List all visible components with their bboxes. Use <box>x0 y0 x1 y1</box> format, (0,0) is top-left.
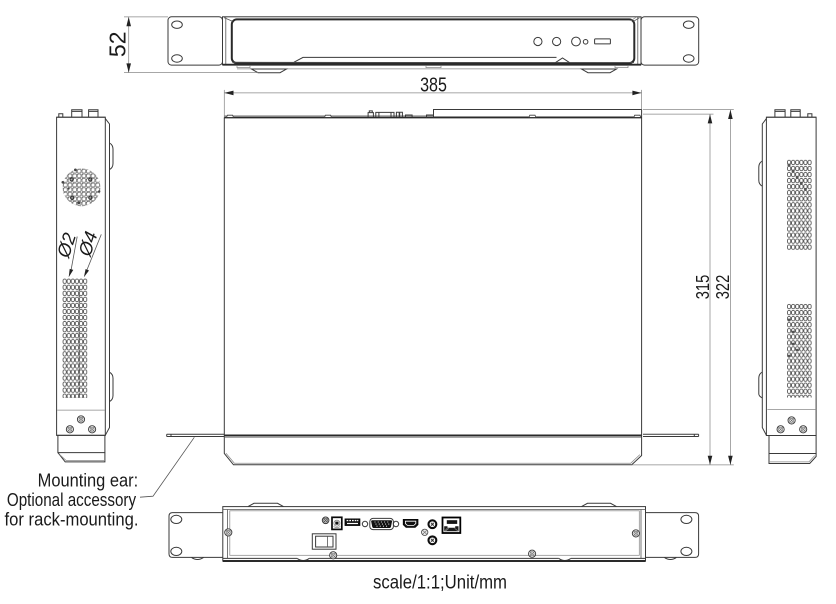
svg-text:315: 315 <box>692 275 713 300</box>
svg-text:52: 52 <box>105 32 131 58</box>
svg-text:322: 322 <box>712 275 733 300</box>
svg-text:for rack-mounting.: for rack-mounting. <box>5 509 139 530</box>
svg-text:Optional accessory: Optional accessory <box>7 489 137 510</box>
svg-text:scale/1:1;Unit/mm: scale/1:1;Unit/mm <box>373 573 507 594</box>
svg-text:385: 385 <box>420 75 447 97</box>
svg-text:Mounting ear:: Mounting ear: <box>38 469 139 490</box>
